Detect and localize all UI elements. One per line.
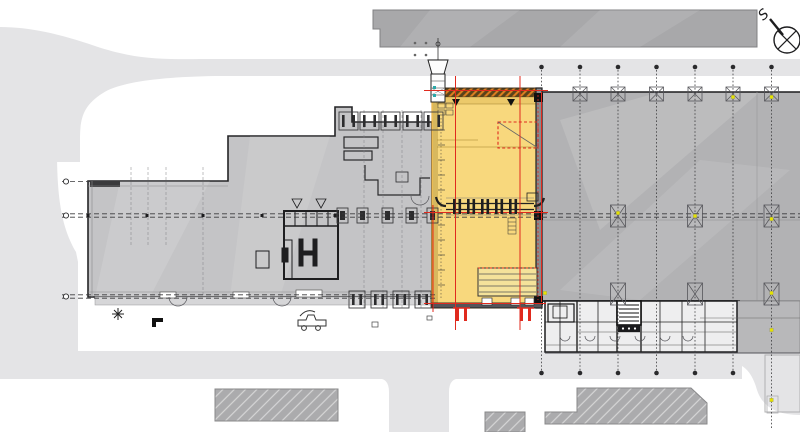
grid-axis-dot [654, 371, 659, 376]
conveyor-tick [495, 199, 498, 214]
bay-column [410, 211, 413, 220]
yellow-marker [616, 211, 620, 215]
bay-column [352, 115, 355, 127]
annex-east-part [737, 301, 800, 353]
yellow-marker [543, 291, 547, 295]
bay-column [341, 211, 344, 220]
grid-node [334, 214, 337, 217]
bay-column [381, 294, 384, 305]
yellow-marker [731, 95, 735, 99]
grid-axis-dot [731, 65, 736, 70]
bay-column [342, 115, 345, 127]
rail-stop-bar [520, 308, 523, 321]
grid-axis-dot [769, 65, 774, 70]
chute-structure [428, 38, 448, 102]
conveyor-tick [453, 199, 456, 214]
bay-column [363, 115, 366, 127]
building-east-hall [540, 92, 800, 353]
conveyor-tick [487, 199, 490, 214]
bay-column [396, 294, 399, 305]
bay-column [386, 211, 389, 220]
north-wall-hatch [432, 88, 540, 97]
north-arrow: S [755, 6, 800, 53]
south-annex [545, 301, 800, 353]
axis-marker [63, 213, 68, 218]
bay-column [359, 294, 362, 305]
conveyor-tick [473, 199, 476, 214]
bay-column [374, 294, 377, 305]
conveyor-tick [501, 199, 504, 214]
site-plan-drawing: S [0, 0, 800, 432]
annex-stair [617, 301, 641, 332]
grid-axis-dot [731, 371, 736, 376]
grid-axis-dot [616, 65, 621, 70]
grid-node [261, 214, 264, 217]
grid-node [202, 214, 205, 217]
bay-column [406, 115, 409, 127]
highlighted-building[interactable] [432, 88, 544, 308]
south-building-2 [485, 412, 525, 432]
yellow-marker [770, 398, 774, 402]
bay-column [427, 115, 430, 127]
south-building-1 [215, 389, 338, 421]
bay-column [437, 115, 440, 127]
bay-column [394, 115, 397, 127]
grid-axis-dot [578, 65, 583, 70]
utility-dot [414, 42, 417, 45]
grid-axis-dot [539, 65, 544, 70]
survey-mark [152, 318, 163, 327]
bay-column [361, 211, 364, 220]
grid-axis-dot [654, 65, 659, 70]
grid-axis-dot [578, 371, 583, 376]
road-bottom-right [742, 353, 800, 415]
building-north [373, 10, 757, 47]
bay-column [384, 115, 387, 127]
bay-column [416, 115, 419, 127]
utility-dot [414, 54, 417, 57]
grid-axis-dot [693, 371, 698, 376]
grid-node [87, 214, 90, 217]
rail-stop-symbols [453, 308, 534, 321]
conveyor-tick [515, 199, 518, 214]
conveyor-tick [467, 199, 470, 214]
yellow-marker [693, 214, 697, 218]
bay-column [373, 115, 376, 127]
conveyor-tick [481, 199, 484, 214]
bay-column [352, 294, 355, 305]
vehicle-symbol [298, 311, 326, 326]
sun-symbol [112, 308, 124, 320]
small-fixture [427, 316, 432, 320]
rail-stop-bar [456, 308, 459, 321]
site-plan-canvas: S [0, 0, 800, 432]
grid-axis-dot [616, 371, 621, 376]
bay-column [418, 294, 421, 305]
yellow-marker [770, 328, 774, 332]
axis-marker [63, 294, 68, 299]
utility-dot [425, 42, 428, 45]
conveyor-tick [459, 199, 462, 214]
grid-node [146, 214, 149, 217]
grid-axis-dot [693, 65, 698, 70]
bay-column [403, 294, 406, 305]
small-fixture [372, 322, 378, 327]
utility-dot [425, 54, 428, 57]
compass-label: S [755, 6, 772, 24]
yellow-marker [770, 95, 774, 99]
conveyor-tick [509, 199, 512, 214]
rail-stop-bar [528, 308, 531, 321]
axis-marker [63, 179, 68, 184]
yellow-marker [770, 217, 774, 221]
rail-stop-bar [464, 308, 467, 321]
grid-axis-dot [539, 371, 544, 376]
building-west-hall [88, 107, 432, 330]
yellow-marker [770, 291, 774, 295]
south-building-3 [545, 388, 707, 424]
